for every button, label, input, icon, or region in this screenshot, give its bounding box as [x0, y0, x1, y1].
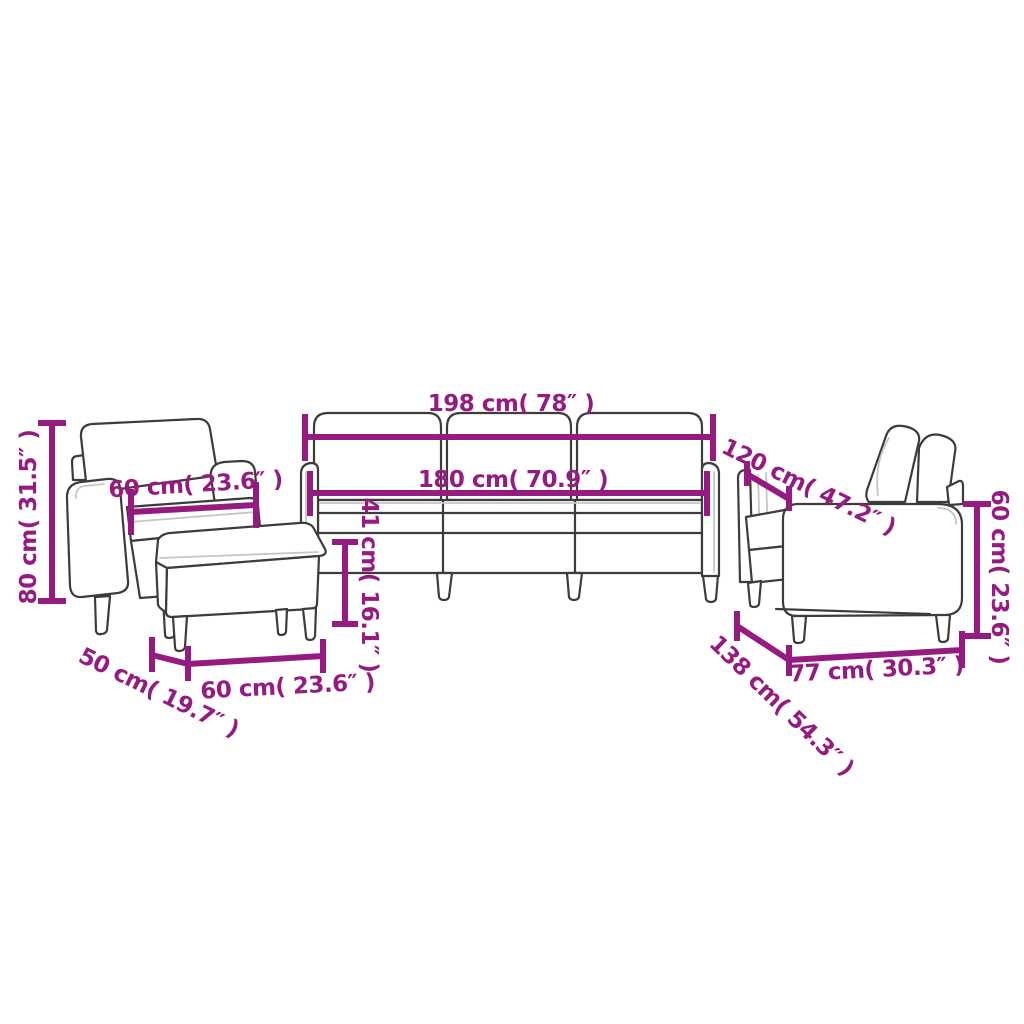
- sofa2-leg: [792, 616, 806, 643]
- footstool-leg: [303, 608, 316, 640]
- dim-label-ottoman-width: 60 cm( 23.6″ ): [200, 669, 376, 704]
- dim-label-sofa2-height: 60 cm( 23.6″ ): [986, 490, 1012, 665]
- sofa2-leg: [748, 581, 761, 607]
- dim-line-ottoman-width: [188, 639, 323, 673]
- footstool-drawing: [156, 523, 326, 651]
- dim-label-sofa3-inner-width: 180 cm( 70.9″ ): [418, 467, 608, 493]
- sofa3-leg: [437, 573, 452, 600]
- dim-line-armchair-height: [38, 423, 66, 601]
- sofa3-leg: [703, 575, 718, 602]
- sofa3-leg: [567, 573, 582, 600]
- diagram-canvas: 198 cm( 78″ ) 180 cm( 70.9″ ) 120 cm( 47…: [0, 0, 1024, 1024]
- dim-label-seat-height: 41 cm( 16.1″ ): [356, 498, 382, 673]
- sofa2-leg: [936, 615, 950, 642]
- dim-label-sofa3-width: 198 cm( 78″ ): [428, 391, 594, 417]
- footstool-leg: [276, 609, 287, 635]
- footstool-leg: [173, 616, 187, 651]
- sofa-set-dimension-diagram: 198 cm( 78″ ) 180 cm( 70.9″ ) 120 cm( 47…: [0, 0, 1024, 1024]
- dim-label-armchair-height: 80 cm( 31.5″ ): [16, 430, 42, 605]
- furniture-line-art: [67, 413, 963, 651]
- armchair-leg: [95, 596, 110, 634]
- sofa2-back-pillow-front: [866, 426, 919, 502]
